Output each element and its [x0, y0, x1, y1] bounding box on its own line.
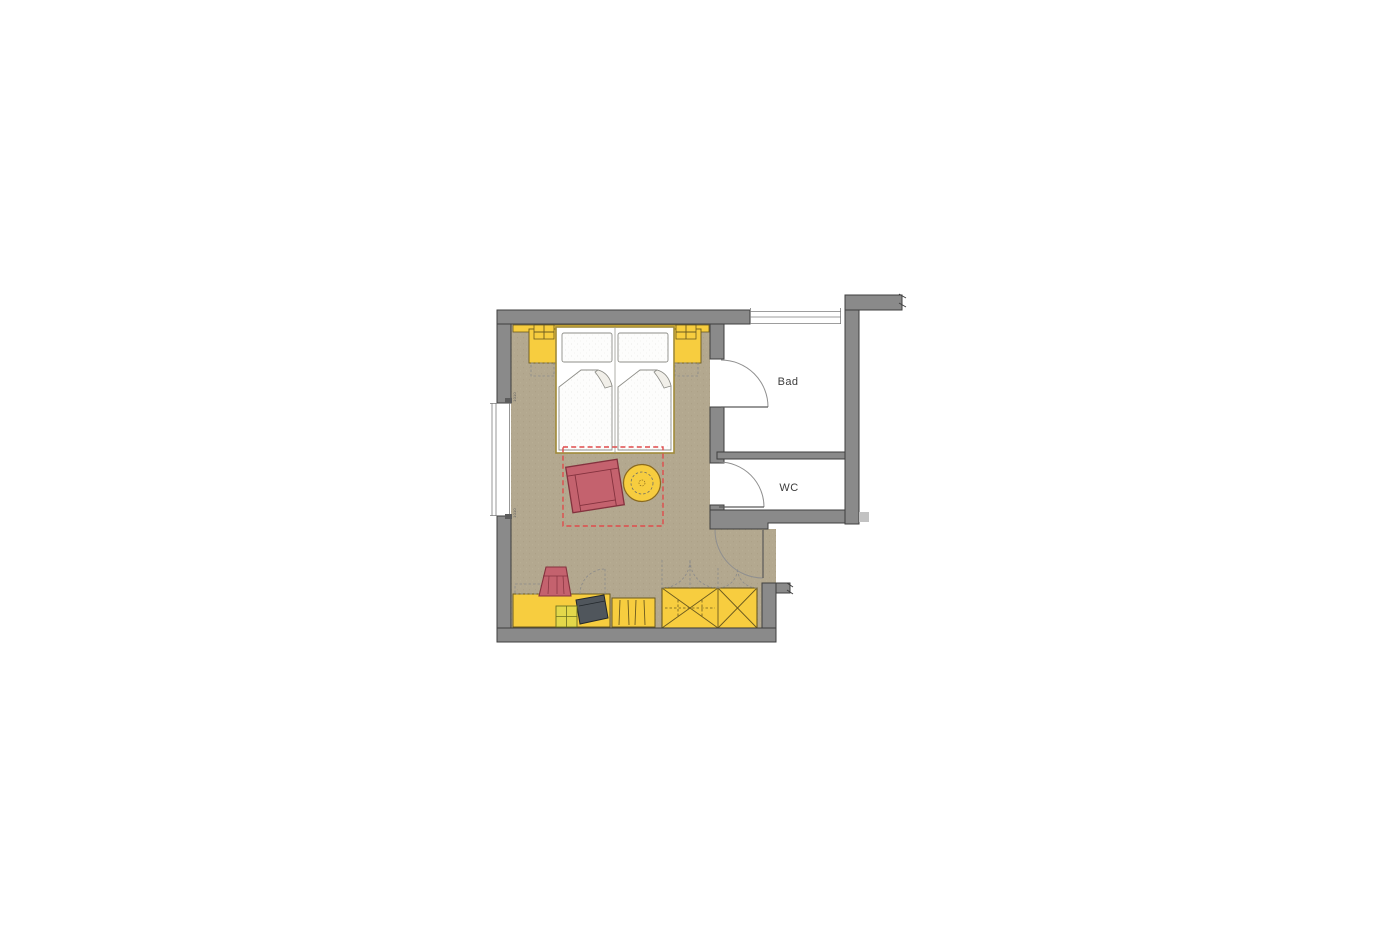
- nightstand-right-tray: [676, 325, 696, 339]
- nightstand-left-tray: [534, 325, 554, 339]
- armchair: [566, 459, 625, 513]
- wall-top-right-stub: [845, 295, 902, 310]
- window-left: [490, 398, 512, 519]
- wall-wc-bottom: [710, 510, 859, 529]
- window-bathroom-top: [750, 308, 841, 324]
- wardrobe: [662, 588, 757, 628]
- room-label-bad: Bad: [778, 376, 799, 388]
- wall-partition-upper: [710, 324, 724, 359]
- pillow-left: [562, 333, 612, 362]
- wall-left-lower: [497, 516, 511, 642]
- wall-top: [497, 310, 750, 324]
- window-left-reveal-top: [505, 398, 512, 403]
- wall-right: [845, 295, 859, 524]
- pillow-right: [618, 333, 668, 362]
- wall-bottom: [497, 628, 776, 642]
- luggage-rack: [612, 598, 655, 627]
- floorplan: Bad WC 1010 1010: [488, 285, 912, 651]
- room-label-wc: WC: [779, 482, 798, 494]
- window-dimension-label-top: 1010: [512, 392, 517, 402]
- minibar: [556, 606, 577, 627]
- wall-divider-bad-wc: [717, 452, 845, 459]
- floorplan-page: Bad WC 1010 1010: [0, 0, 1400, 933]
- window-left-reveal-bottom: [505, 514, 512, 519]
- round-side-table: [624, 465, 661, 502]
- bathroom-floor: [724, 324, 845, 452]
- window-dimension-label-bottom: 1010: [512, 508, 517, 518]
- wall-wc-right-ext: [859, 512, 869, 522]
- wall-entry-stub: [776, 583, 790, 593]
